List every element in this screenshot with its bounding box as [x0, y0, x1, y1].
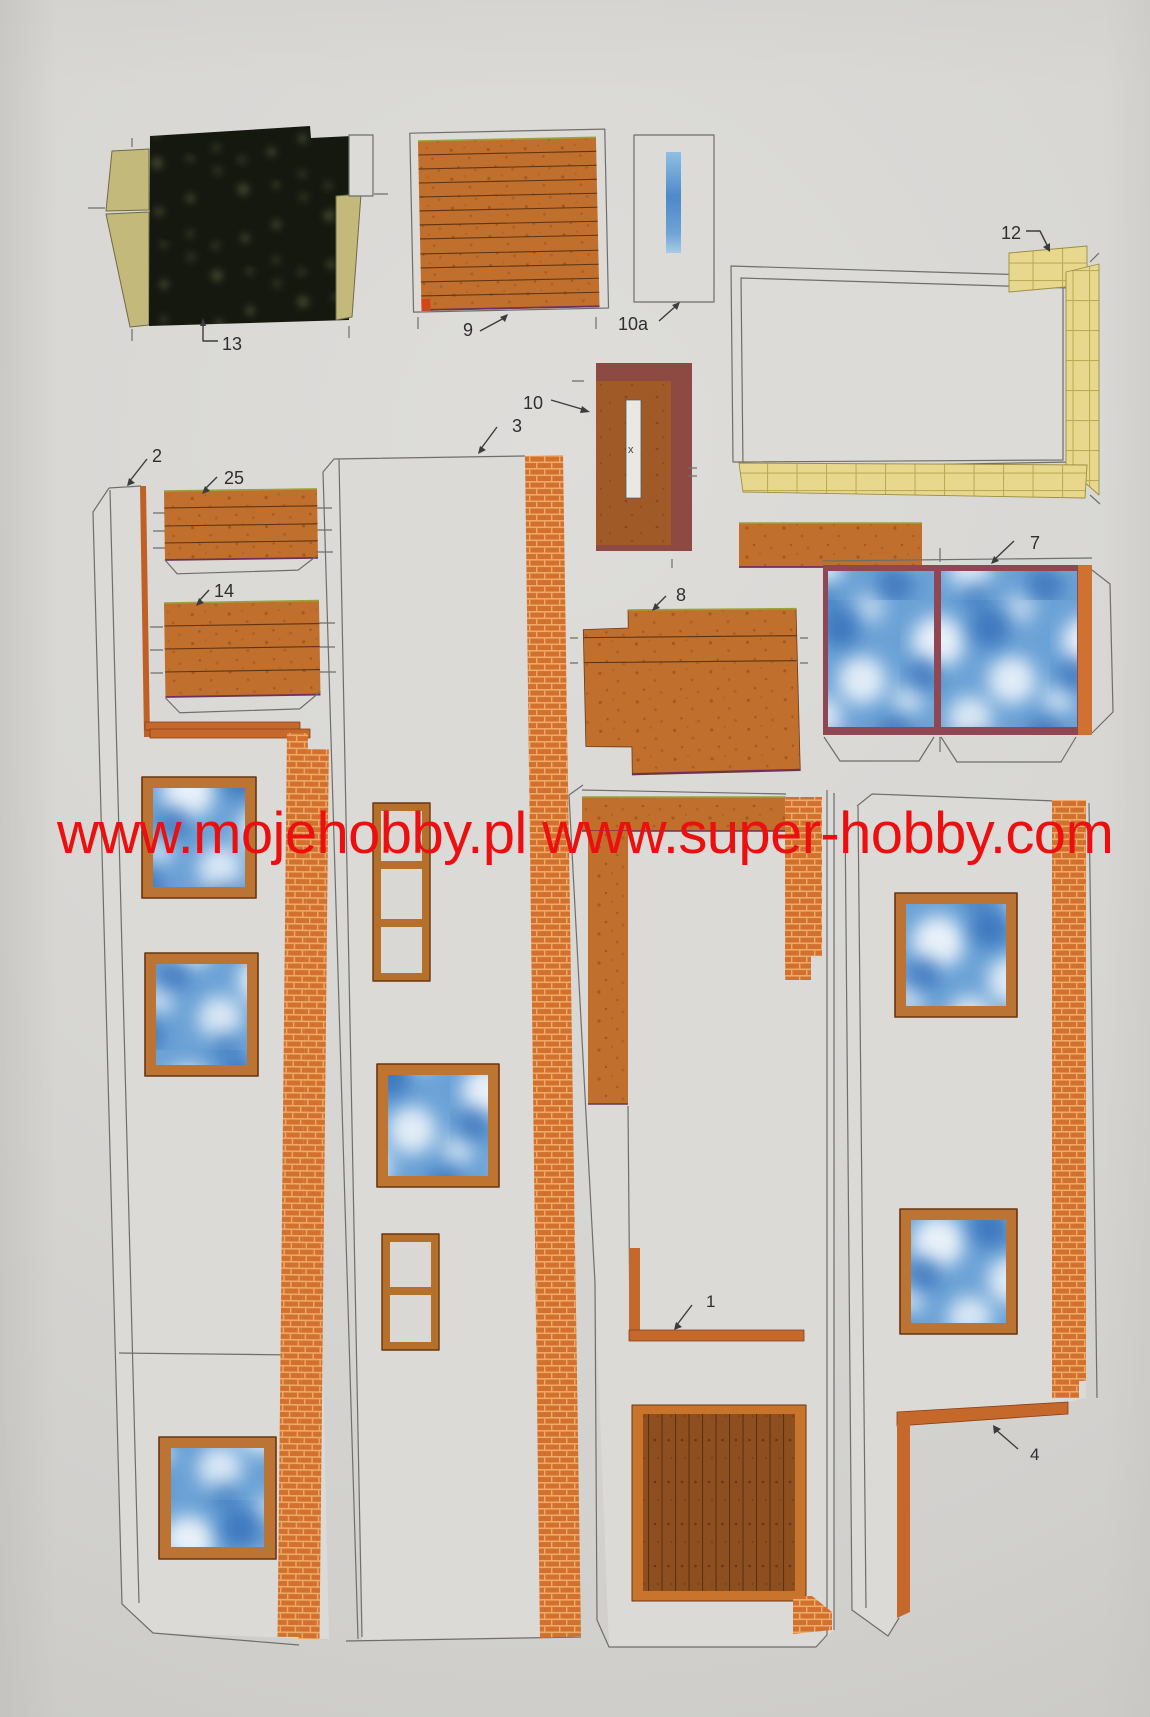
- svg-text:25: 25: [224, 468, 244, 488]
- svg-text:9: 9: [463, 320, 473, 340]
- svg-text:8: 8: [676, 585, 686, 605]
- svg-text:4: 4: [1030, 1445, 1039, 1464]
- svg-text:7: 7: [1030, 533, 1040, 553]
- svg-text:10: 10: [523, 393, 543, 413]
- svg-text:3: 3: [512, 416, 522, 436]
- svg-text:x: x: [628, 444, 634, 456]
- svg-text:12: 12: [1001, 223, 1021, 243]
- svg-text:2: 2: [152, 446, 162, 466]
- svg-text:10a: 10a: [618, 314, 649, 334]
- svg-text:14: 14: [214, 581, 234, 601]
- svg-text:1: 1: [706, 1292, 715, 1311]
- svg-text:13: 13: [222, 334, 242, 354]
